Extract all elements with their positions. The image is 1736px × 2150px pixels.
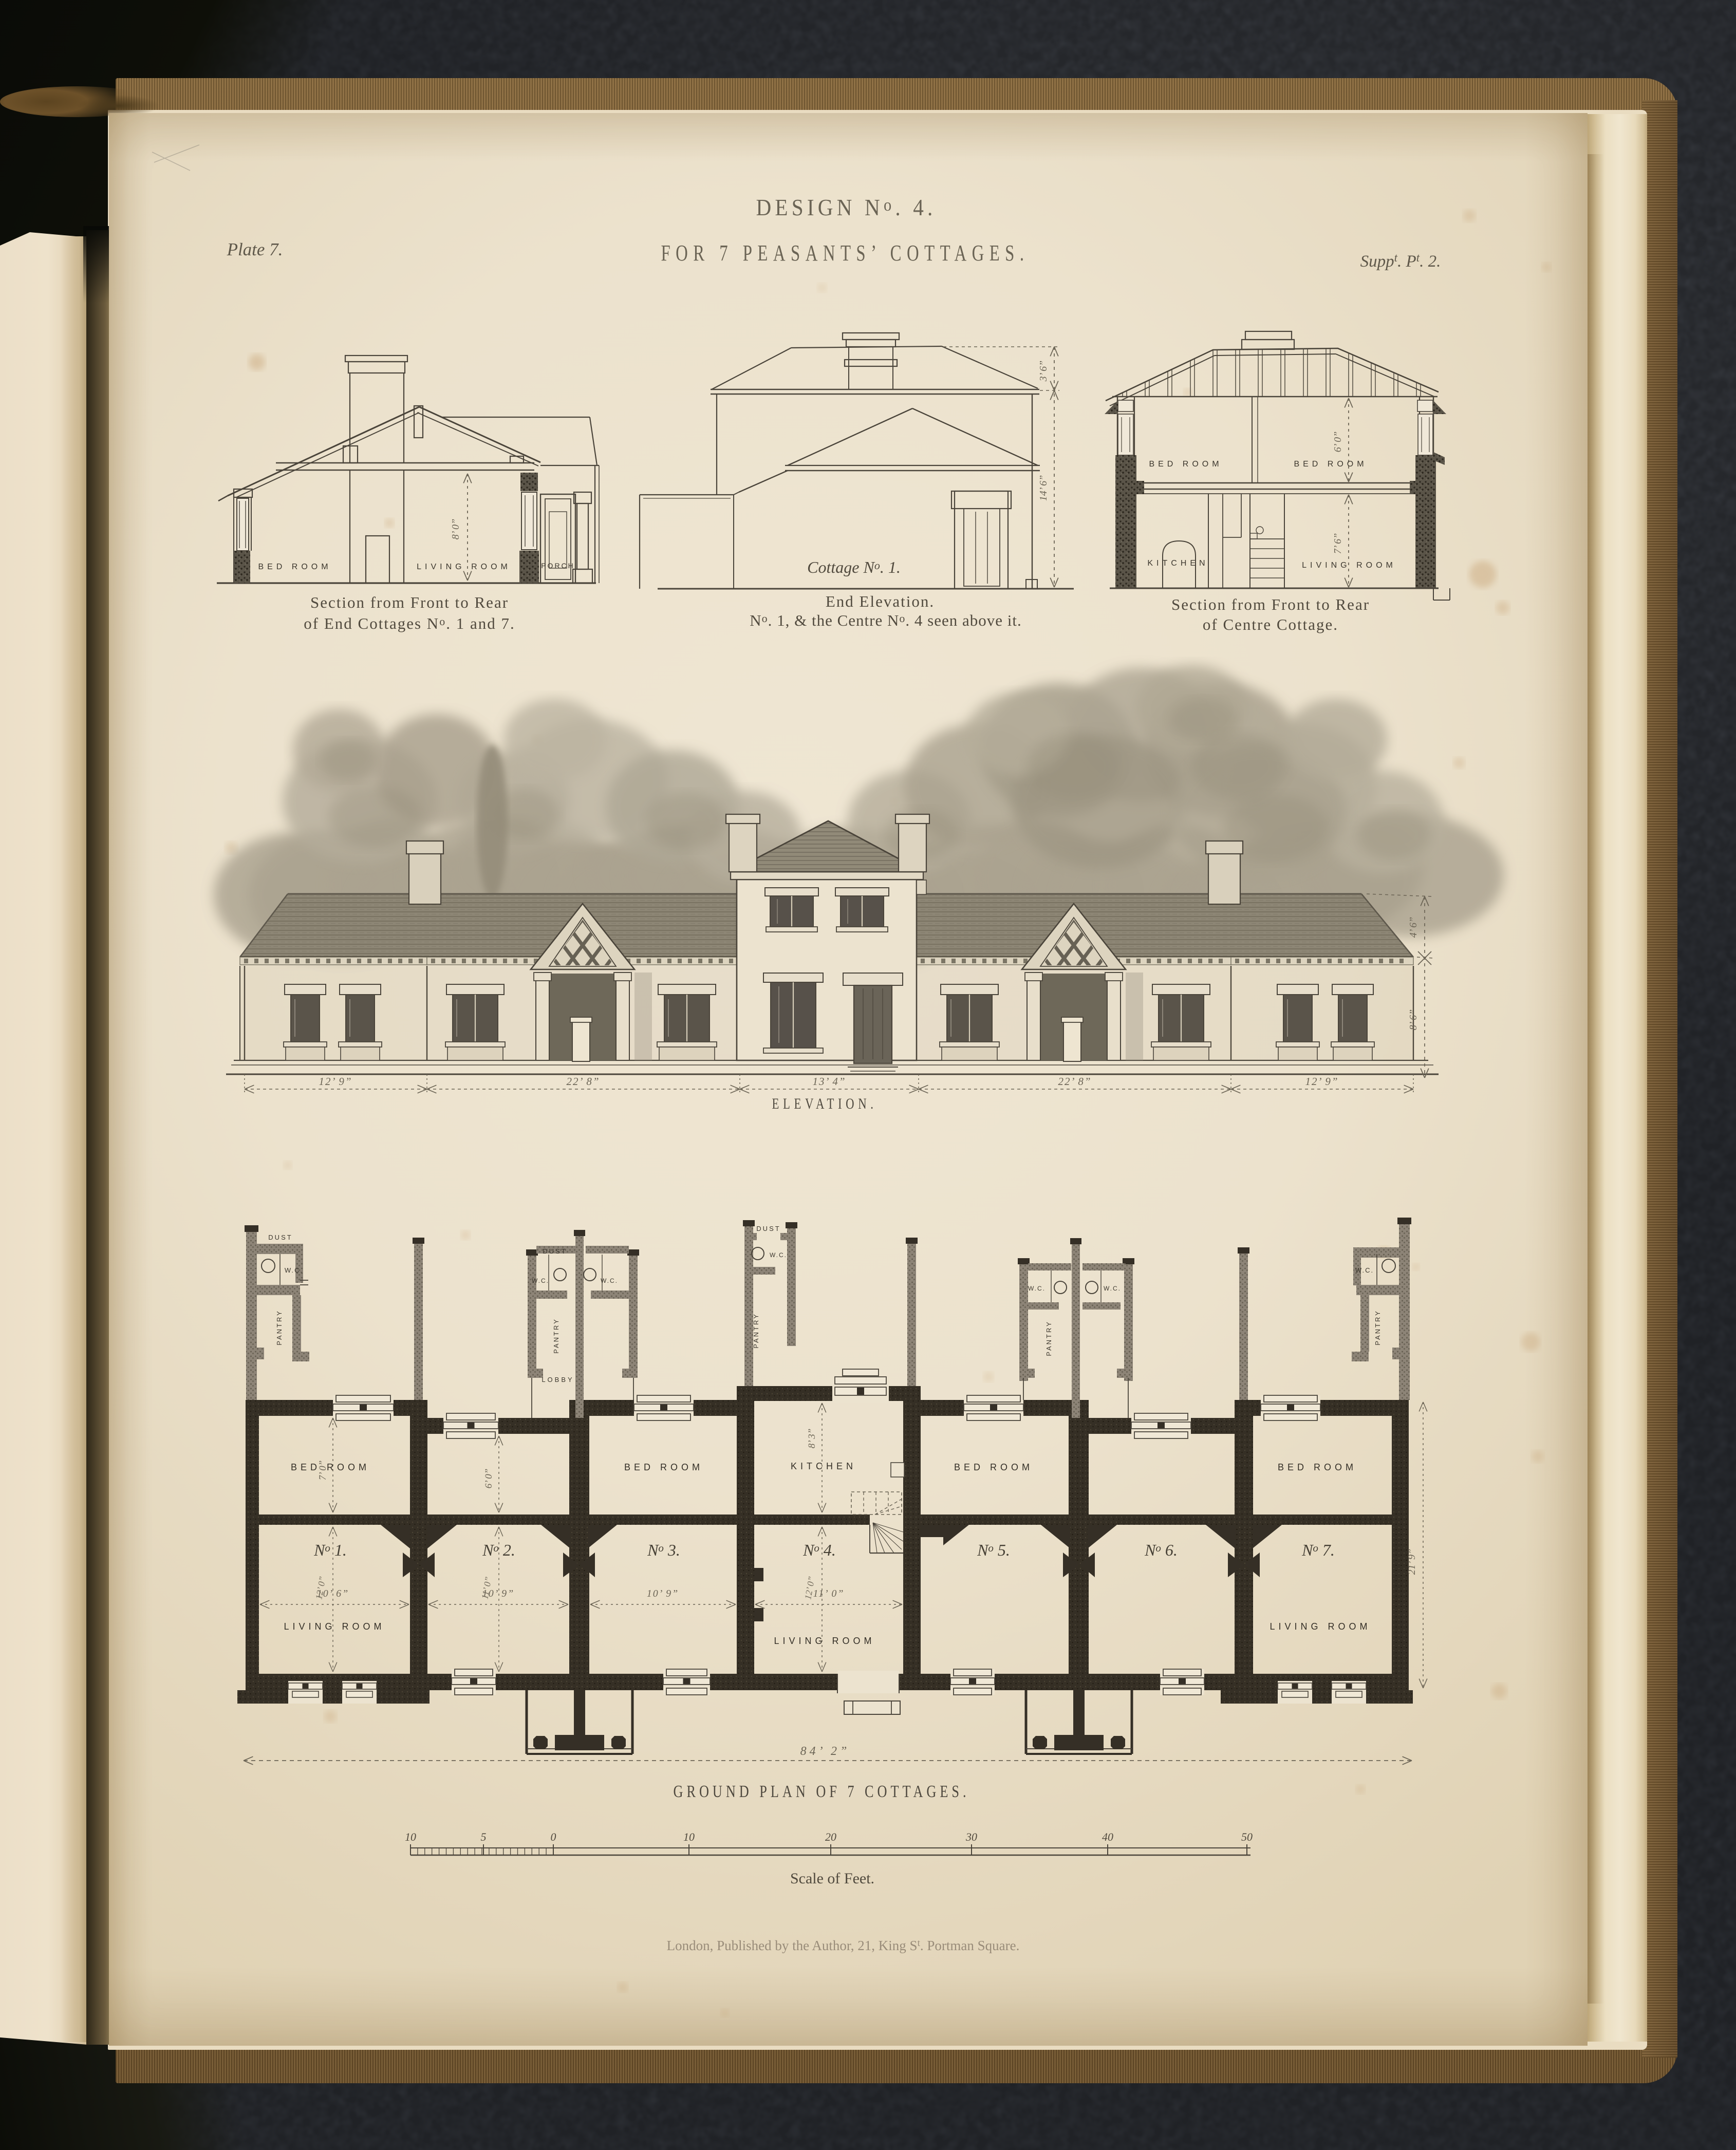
svg-text:50: 50 (1241, 1830, 1253, 1843)
svg-text:BED ROOM: BED ROOM (624, 1462, 703, 1472)
svg-text:ELEVATION.: ELEVATION. (772, 1095, 878, 1112)
svg-text:5: 5 (481, 1830, 487, 1843)
svg-text:LIVING ROOM: LIVING ROOM (417, 563, 511, 571)
svg-text:84’ 2”: 84’ 2” (800, 1745, 850, 1758)
svg-text:No 1.: No 1. (313, 1541, 347, 1559)
svg-text:Section from Front to Rear: Section from Front to Rear (1171, 595, 1370, 613)
svg-text:30: 30 (965, 1830, 977, 1843)
svg-text:14’ 6”: 14’ 6” (1038, 475, 1049, 501)
svg-text:BED ROOM: BED ROOM (291, 1462, 370, 1472)
svg-text:21’ 9”: 21’ 9” (1406, 1549, 1417, 1575)
svg-text:Plate 7.: Plate 7. (227, 239, 283, 259)
svg-text:LOBBY: LOBBY (542, 1376, 574, 1384)
svg-text:PANTRY: PANTRY (275, 1310, 283, 1345)
svg-text:W.C.: W.C. (285, 1266, 303, 1274)
svg-text:End Elevation.: End Elevation. (826, 592, 935, 610)
svg-text:W.C.: W.C. (1355, 1266, 1374, 1274)
svg-text:No 6.: No 6. (1144, 1541, 1178, 1559)
svg-text:BED ROOM: BED ROOM (1278, 1462, 1357, 1472)
svg-text:0: 0 (551, 1830, 556, 1843)
svg-text:Cottage No. 1.: Cottage No. 1. (807, 558, 901, 576)
svg-text:Section from Front to Rear: Section from Front to Rear (310, 593, 509, 611)
svg-text:12’ 9”: 12’ 9” (319, 1075, 352, 1088)
svg-text:10: 10 (405, 1830, 416, 1843)
svg-text:GROUND PLAN OF 7 COTTAGES.: GROUND PLAN OF 7 COTTAGES. (674, 1782, 970, 1801)
svg-text:22’ 8”: 22’ 8” (1058, 1075, 1091, 1088)
svg-text:PORCH: PORCH (541, 562, 575, 570)
svg-text:BED ROOM: BED ROOM (1294, 460, 1367, 469)
svg-text:DESIGN No. 4.: DESIGN No. 4. (756, 194, 937, 220)
svg-text:of End Cottages No. 1 and 7.: of End Cottages No. 1 and 7. (304, 614, 515, 632)
svg-text:LIVING ROOM: LIVING ROOM (1270, 1621, 1371, 1632)
svg-text:10’ 9”: 10’ 9” (647, 1588, 679, 1599)
svg-text:20: 20 (825, 1830, 836, 1843)
svg-text:No 7.: No 7. (1301, 1541, 1335, 1559)
svg-text:No 4.: No 4. (802, 1541, 836, 1559)
svg-text:PANTRY: PANTRY (1374, 1310, 1382, 1345)
svg-text:FOR 7 PEASANTS’ COTTAGES.: FOR 7 PEASANTS’ COTTAGES. (661, 240, 1030, 266)
svg-text:3’ 6”: 3’ 6” (1038, 361, 1049, 382)
svg-text:10: 10 (683, 1830, 695, 1843)
svg-text:7’ 6”: 7’ 6” (1332, 533, 1343, 554)
svg-text:W.C.: W.C. (532, 1277, 549, 1284)
svg-text:DUST: DUST (543, 1247, 567, 1255)
svg-text:8’ 0”: 8’ 0” (450, 519, 461, 540)
svg-text:PANTRY: PANTRY (752, 1313, 760, 1349)
svg-text:KITCHEN: KITCHEN (791, 1461, 856, 1471)
svg-text:11’ 0”: 11’ 0” (813, 1588, 844, 1599)
svg-text:No 5.: No 5. (977, 1541, 1010, 1559)
svg-text:W.C.: W.C. (1104, 1285, 1121, 1292)
svg-text:4’ 6”: 4’ 6” (1408, 917, 1419, 938)
svg-text:6’ 0”: 6’ 0” (483, 1469, 494, 1489)
svg-text:6’ 0”: 6’ 0” (1332, 432, 1343, 453)
svg-text:8’ 6”: 8’ 6” (1408, 1009, 1419, 1031)
svg-text:W.C.: W.C. (770, 1251, 787, 1259)
svg-text:W.C.: W.C. (1028, 1285, 1046, 1292)
svg-text:PANTRY: PANTRY (552, 1318, 560, 1354)
svg-text:DUST: DUST (268, 1233, 292, 1241)
svg-text:No 2.: No 2. (482, 1541, 515, 1559)
svg-text:BED ROOM: BED ROOM (258, 563, 331, 571)
svg-text:DUST: DUST (756, 1225, 780, 1232)
svg-text:PANTRY: PANTRY (1045, 1320, 1053, 1356)
svg-text:KITCHEN: KITCHEN (1147, 559, 1208, 568)
svg-text:8’ 3”: 8’ 3” (807, 1429, 817, 1449)
svg-text:40: 40 (1102, 1830, 1113, 1843)
svg-text:BED ROOM: BED ROOM (954, 1462, 1033, 1472)
svg-text:LIVING ROOM: LIVING ROOM (284, 1621, 385, 1632)
svg-text:Scale of Feet.: Scale of Feet. (790, 1870, 874, 1887)
svg-text:No 3.: No 3. (647, 1541, 680, 1559)
svg-text:12’ 9”: 12’ 9” (1305, 1075, 1338, 1088)
svg-text:London, Published by the Autho: London, Published by the Author, 21, Kin… (667, 1938, 1020, 1953)
svg-text:No. 1, & the Centre No. 4 seen: No. 1, & the Centre No. 4 seen above it. (750, 611, 1021, 629)
svg-text:LIVING ROOM: LIVING ROOM (1302, 561, 1396, 570)
svg-text:of Centre Cottage.: of Centre Cottage. (1203, 615, 1338, 633)
svg-text:Suppt. Pt. 2.: Suppt. Pt. 2. (1360, 251, 1441, 271)
svg-text:LIVING ROOM: LIVING ROOM (774, 1636, 875, 1646)
svg-text:13’ 4”: 13’ 4” (812, 1075, 846, 1088)
svg-text:BED ROOM: BED ROOM (1149, 460, 1222, 469)
svg-text:W.C.: W.C. (601, 1277, 618, 1284)
svg-text:22’ 8”: 22’ 8” (566, 1075, 600, 1088)
